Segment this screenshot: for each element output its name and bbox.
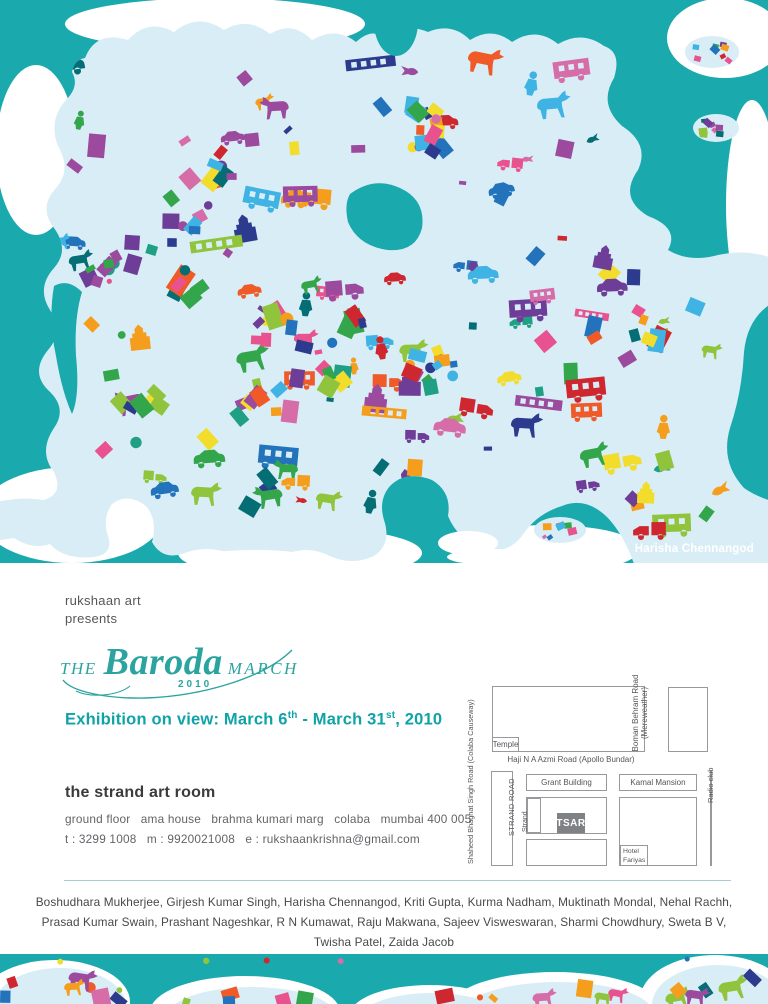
venue-name: the strand art room <box>65 784 216 802</box>
map-building-kamal: Kamal Mansion <box>619 774 697 791</box>
artists-line: Prasad Kumar Swain, Prashant Nageshkar, … <box>30 912 738 932</box>
map-building-topright <box>668 687 708 752</box>
logo-the: THE <box>60 659 97 679</box>
artwork-strip <box>0 954 768 1004</box>
presenter-presents: presents <box>65 610 141 628</box>
map-road-label-radio: Radio club <box>706 768 715 803</box>
artwork-canvas: Harisha Chennangod <box>0 0 768 563</box>
map-road-label-top: Haji N A Azmi Road (Apollo Bundar) <box>496 755 646 764</box>
logo-year: 2010 <box>178 679 212 690</box>
map-road-label-strand: STRAND ROAD <box>507 778 516 836</box>
artwork-illustration <box>0 0 768 563</box>
divider-line <box>64 880 731 881</box>
artists-line: Boshudhara Mukherjee, Girjesh Kumar Sing… <box>30 892 738 912</box>
exhibition-dates: Exhibition on view: March 6th - March 31… <box>65 710 442 730</box>
logo-march: MARCH <box>228 659 299 679</box>
presenter-name: rukshaan art <box>65 592 141 610</box>
location-map: Shaheed Bhaghat Singh Road (Colaba Cause… <box>474 684 736 870</box>
map-building-hotel: Hotel Fariyas <box>620 845 648 866</box>
artist-credit: Harisha Chennangod <box>635 543 754 555</box>
map-building-grant: Grant Building <box>526 774 607 791</box>
presenter-block: rukshaan art presents <box>65 592 141 628</box>
gallery-logo: THE Baroda MARCH 2010 <box>60 640 300 700</box>
artists-line: Twisha Patel, Zaida Jacob <box>30 932 738 952</box>
map-label-strand-small: Strand <box>521 811 530 832</box>
tsar-marker: TSAR <box>557 813 585 833</box>
venue-contact: t : 3299 1008 m : 9920021008 e : rukshaa… <box>65 832 420 846</box>
poster-page: Harisha Chennangod rukshaan art presents… <box>0 0 768 1004</box>
map-road-label-right: Boman Behram Road (Mereweather) <box>631 671 649 755</box>
map-building-temple: Temple <box>492 737 519 752</box>
venue-address: ground floor ama house brahma kumari mar… <box>65 812 471 826</box>
artwork-strip-illustration <box>0 954 768 1004</box>
map-road-label-left: Shaheed Bhaghat Singh Road (Colaba Cause… <box>466 699 475 864</box>
map-building-bottomleft <box>526 839 607 866</box>
logo-baroda: Baroda <box>104 640 223 684</box>
artists-list: Boshudhara Mukherjee, Girjesh Kumar Sing… <box>30 892 738 952</box>
